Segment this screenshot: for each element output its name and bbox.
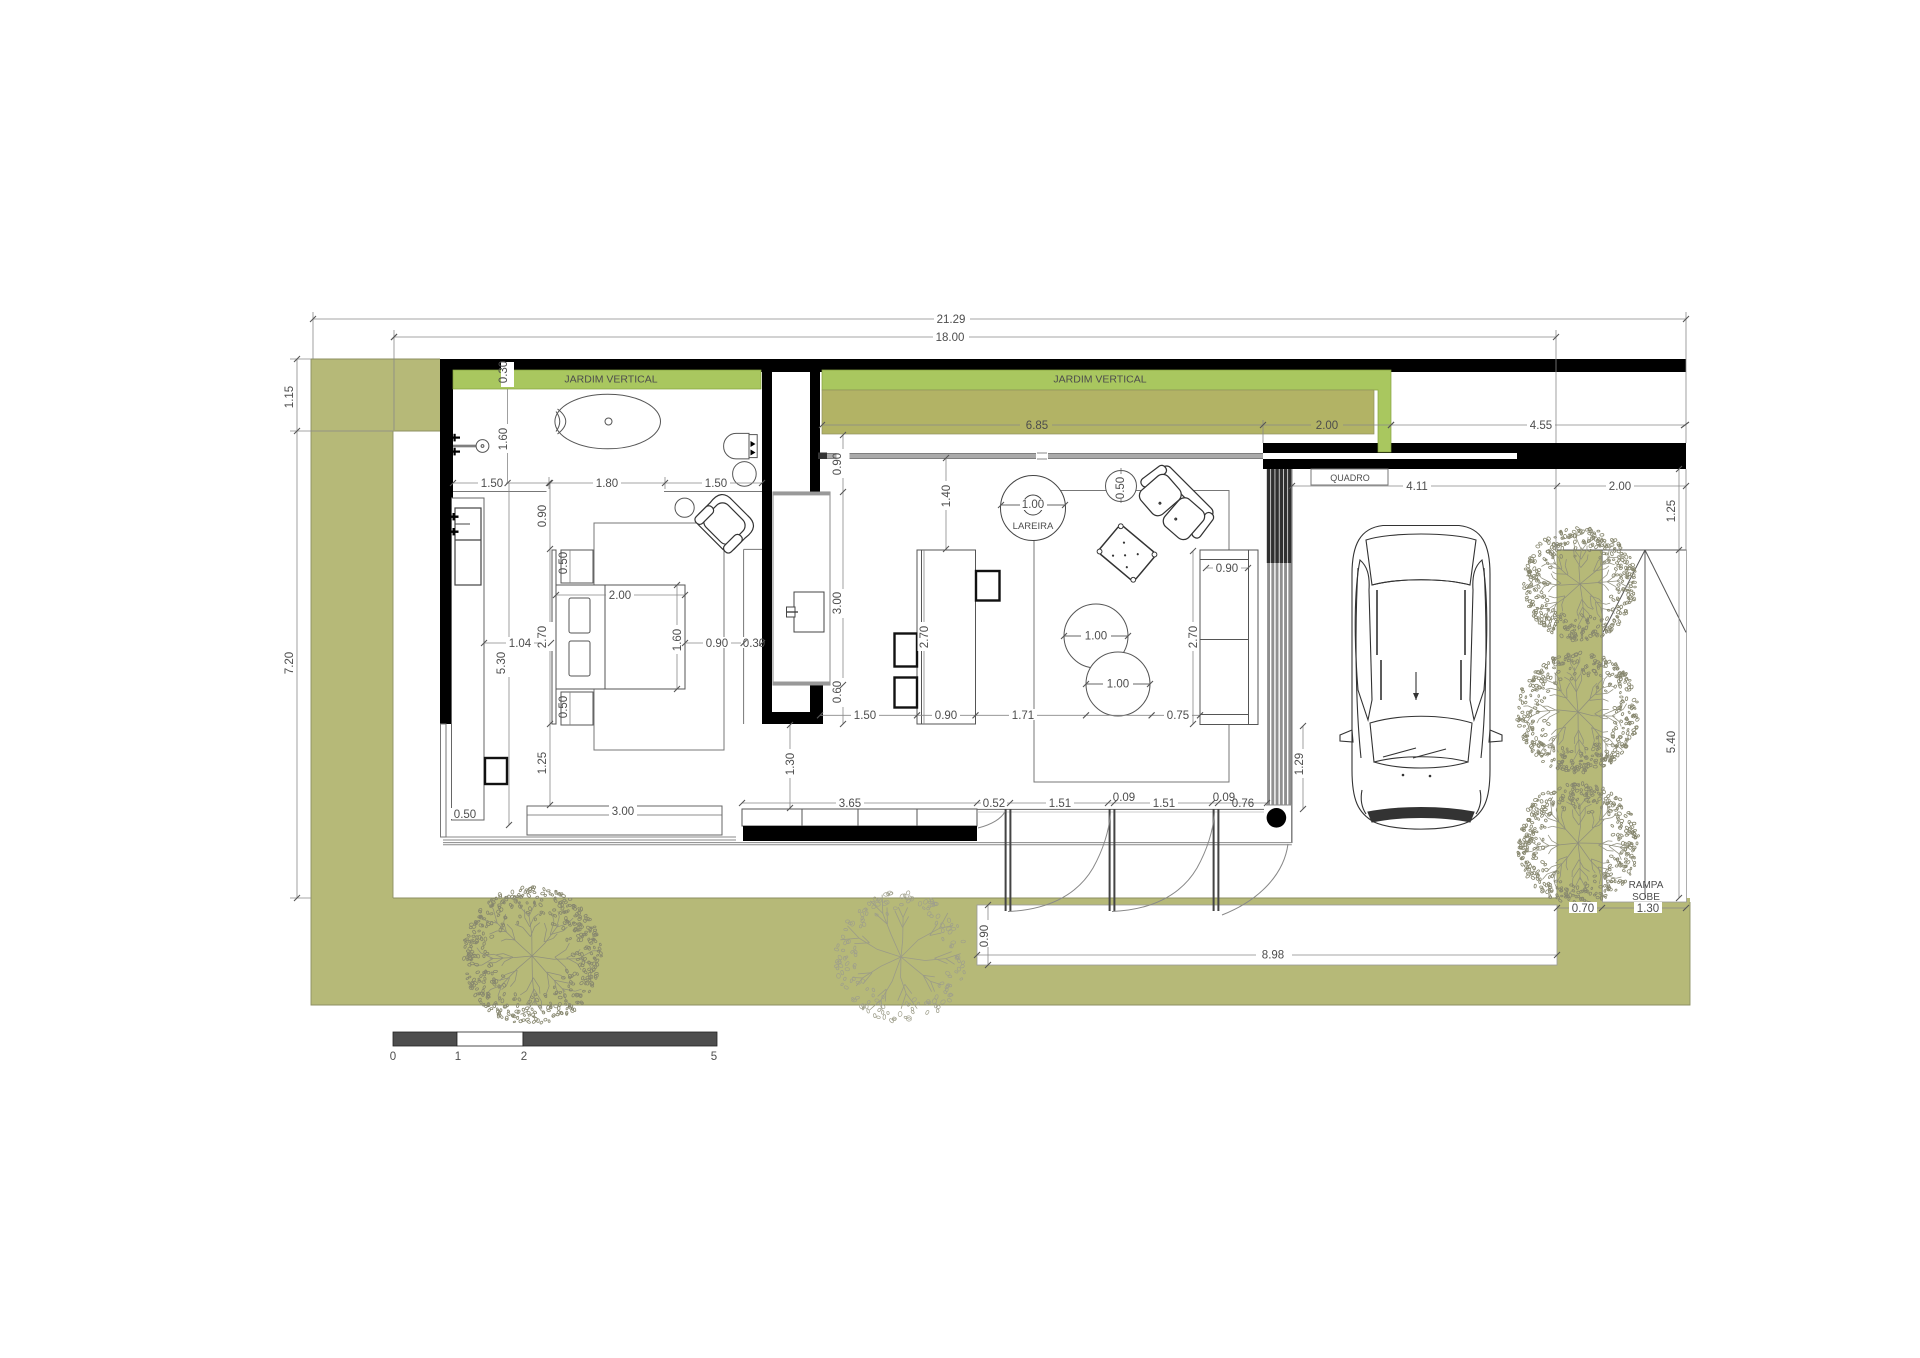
svg-text:3.65: 3.65 [839, 798, 861, 810]
svg-text:1.50: 1.50 [481, 478, 503, 490]
svg-text:6.85: 6.85 [1026, 420, 1048, 432]
svg-text:0.70: 0.70 [1572, 903, 1594, 915]
svg-text:1: 1 [455, 1051, 461, 1063]
svg-text:1.15: 1.15 [284, 386, 296, 408]
svg-text:0.50: 0.50 [558, 696, 570, 718]
svg-text:4.11: 4.11 [1406, 481, 1428, 493]
svg-text:1.50: 1.50 [854, 710, 876, 722]
svg-text:5.40: 5.40 [1666, 731, 1678, 753]
svg-text:2.00: 2.00 [1316, 420, 1338, 432]
svg-text:1.51: 1.51 [1049, 798, 1071, 810]
svg-text:18.00: 18.00 [936, 332, 965, 344]
svg-text:1.40: 1.40 [941, 485, 953, 507]
svg-text:1.50: 1.50 [705, 478, 727, 490]
svg-text:1.00: 1.00 [1107, 679, 1129, 691]
svg-text:21.29: 21.29 [937, 314, 966, 326]
svg-text:7.20: 7.20 [284, 652, 296, 674]
svg-text:5: 5 [711, 1051, 717, 1063]
svg-text:0.90: 0.90 [979, 925, 991, 947]
svg-text:2.00: 2.00 [1609, 481, 1631, 493]
svg-text:0.52: 0.52 [983, 798, 1005, 810]
svg-text:4.55: 4.55 [1530, 420, 1552, 432]
svg-text:2.70: 2.70 [537, 626, 549, 648]
svg-text:2.70: 2.70 [1188, 626, 1200, 648]
svg-text:3.00: 3.00 [612, 806, 634, 818]
svg-text:0.90: 0.90 [832, 453, 844, 475]
svg-text:2.70: 2.70 [919, 626, 931, 648]
svg-text:1.30: 1.30 [785, 753, 797, 775]
svg-text:1.71: 1.71 [1012, 710, 1034, 722]
svg-text:1.30: 1.30 [1637, 903, 1659, 915]
svg-text:0.50: 0.50 [454, 809, 476, 821]
svg-text:0.90: 0.90 [537, 505, 549, 527]
svg-text:2.00: 2.00 [609, 590, 631, 602]
svg-text:0.50: 0.50 [1115, 477, 1127, 499]
svg-text:SOBE: SOBE [1632, 892, 1660, 903]
svg-text:1.25: 1.25 [1666, 500, 1678, 522]
svg-text:QUADRO: QUADRO [1330, 473, 1370, 483]
svg-text:1.00: 1.00 [1085, 631, 1107, 643]
svg-text:RAMPA: RAMPA [1629, 880, 1664, 891]
svg-text:5.30: 5.30 [496, 652, 508, 674]
svg-text:0.76: 0.76 [1232, 798, 1254, 810]
svg-text:0: 0 [390, 1051, 396, 1063]
svg-text:1.51: 1.51 [1153, 798, 1175, 810]
svg-text:1.00: 1.00 [1022, 499, 1044, 511]
svg-text:LAREIRA: LAREIRA [1013, 521, 1054, 532]
svg-text:JARDIM VERTICAL: JARDIM VERTICAL [564, 374, 657, 386]
svg-text:0.90: 0.90 [935, 710, 957, 722]
svg-text:0.75: 0.75 [1167, 710, 1189, 722]
svg-text:0.30: 0.30 [498, 361, 510, 383]
svg-text:0.90: 0.90 [706, 638, 728, 650]
svg-text:0.60: 0.60 [832, 681, 844, 703]
svg-text:0.50: 0.50 [558, 552, 570, 574]
svg-text:1.60: 1.60 [498, 428, 510, 450]
svg-text:1.60: 1.60 [672, 629, 684, 651]
svg-text:8.98: 8.98 [1262, 950, 1284, 962]
svg-text:JARDIM VERTICAL: JARDIM VERTICAL [1053, 374, 1146, 386]
svg-text:1.04: 1.04 [509, 638, 532, 650]
svg-text:0.90: 0.90 [1216, 563, 1238, 575]
svg-text:1.25: 1.25 [537, 752, 549, 774]
svg-text:1.29: 1.29 [1294, 753, 1306, 775]
svg-text:3.00: 3.00 [832, 592, 844, 614]
svg-text:2: 2 [521, 1051, 527, 1063]
svg-text:1.80: 1.80 [596, 478, 618, 490]
svg-text:0.09: 0.09 [1113, 792, 1135, 804]
